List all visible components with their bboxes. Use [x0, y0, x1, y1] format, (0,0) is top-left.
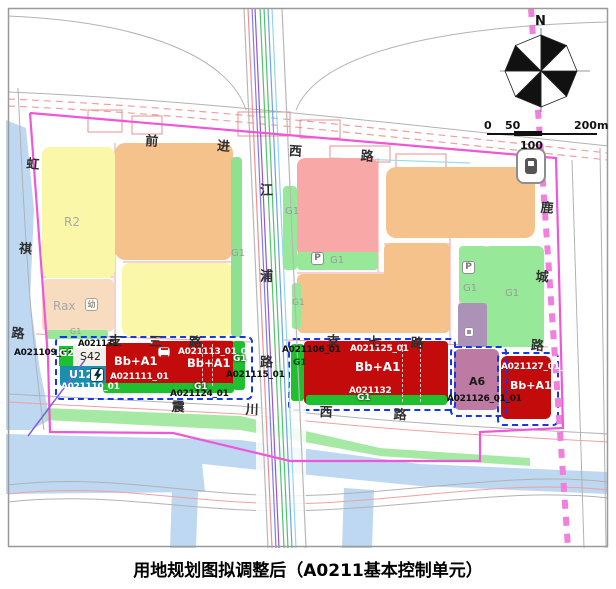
label-s42: S42 [80, 351, 101, 362]
map-overlay-layer [0, 0, 616, 589]
road-zhisan: 支三路 [109, 330, 229, 351]
label-bb-a1: Bb+A1 [114, 356, 158, 368]
kindergarten-icon: 幼 [85, 298, 98, 311]
label-g1: G1 [233, 355, 247, 364]
label-bb-a1: Bb+A1 [187, 358, 231, 370]
parking-icon: P [311, 252, 324, 265]
label-g1: G1 [330, 256, 344, 266]
power-icon [90, 368, 104, 382]
map-title: 用地规划图拟调整后（A0211基本控制单元） [0, 556, 616, 581]
road-zhiqi: 支七路 [327, 330, 453, 352]
road-jiangpu: 江浦路 [255, 183, 274, 441]
scale-tick-0: 0 [484, 119, 492, 132]
parcel-code: A021111_01 [110, 373, 169, 382]
label-rax: Rax [53, 300, 76, 312]
label-g1: G1 [70, 328, 81, 336]
parcel-code: A021110_01 [61, 383, 120, 392]
parking-icon: P [462, 261, 475, 274]
scale-tick-200m: 200m [574, 119, 608, 132]
label-g1: G1 [231, 249, 245, 259]
label-g2: G2 [59, 349, 74, 359]
scale-tick-100: 100 [520, 139, 543, 152]
metro-station-icon [516, 148, 546, 184]
label-g1: G1 [285, 207, 299, 217]
parcel-code: A021126_01_01 [447, 395, 522, 404]
label-g1: G1 [505, 289, 519, 299]
label-g1: G1 [463, 284, 477, 294]
label-a6: A6 [469, 376, 485, 387]
label-bb-a1: Bb+A1 [355, 361, 400, 373]
planning-map-page: R2 Rax 幼 G1 G1 G1 P G1 G1 P G1 G1 A02110… [0, 0, 616, 589]
label-r2: R2 [64, 216, 80, 228]
facility-icon [464, 327, 474, 337]
label-g1: G1 [293, 359, 307, 368]
north-label: N [535, 14, 546, 29]
label-g1: G1 [292, 299, 305, 308]
scale-tick-50: 50 [505, 119, 520, 132]
